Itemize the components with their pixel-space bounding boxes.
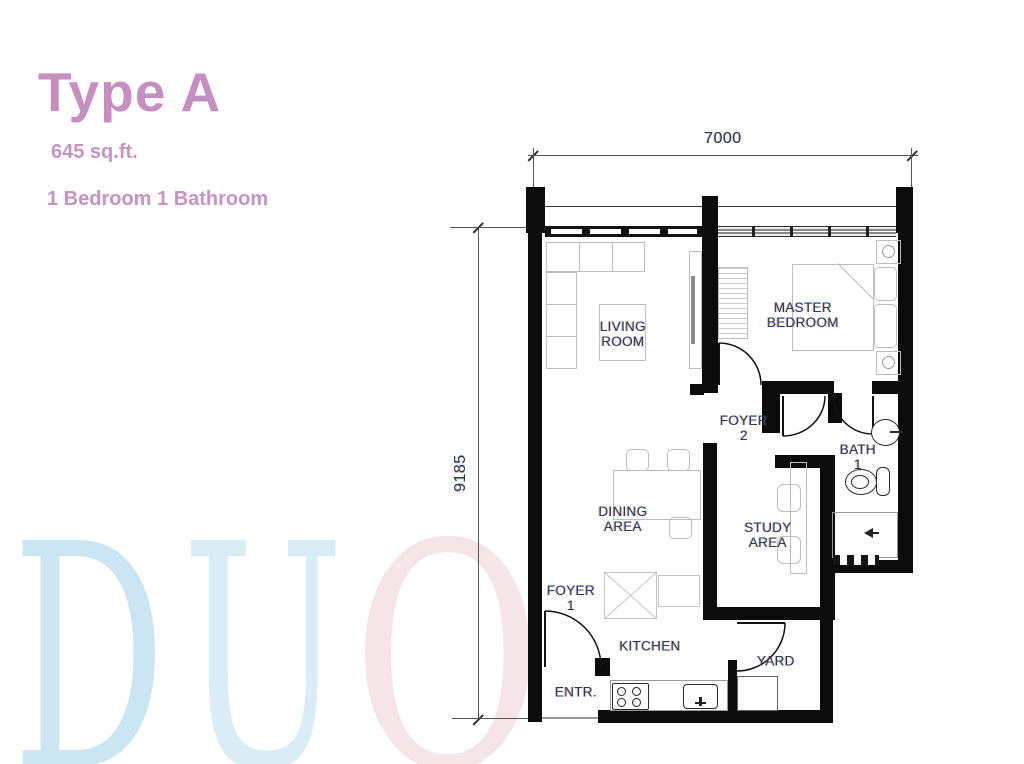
entrance-threshold xyxy=(542,717,598,719)
lamp-icon xyxy=(882,356,895,369)
shower-head-icon xyxy=(864,528,873,538)
dim-height: 9185 xyxy=(452,443,470,503)
cabinet xyxy=(658,575,700,607)
room-label-kitchen: KITCHEN xyxy=(619,638,680,653)
dim-line-top xyxy=(528,155,918,156)
door-arc-master-bedroom xyxy=(716,340,764,388)
wall-study-bottom xyxy=(703,607,835,620)
door-arc-foyer2 xyxy=(780,394,830,438)
area-label: 645 sq.ft. xyxy=(51,141,138,164)
kitchen-sink xyxy=(683,684,718,709)
chair xyxy=(669,517,692,539)
wall-stub xyxy=(690,384,704,395)
dim-ext-line xyxy=(452,718,540,719)
pillow xyxy=(874,304,897,348)
stove xyxy=(612,683,649,710)
dim-ext-line xyxy=(911,148,912,187)
page-title: Type A xyxy=(38,60,221,124)
sink-tap xyxy=(890,431,902,433)
chair xyxy=(667,449,690,471)
chair xyxy=(626,449,649,471)
window-living xyxy=(545,226,702,237)
room-label-master-bedroom: MASTER BEDROOM xyxy=(767,300,839,330)
lamp-icon xyxy=(882,245,895,258)
wall-bottom xyxy=(598,710,833,723)
config-label: 1 Bedroom 1 Bathroom xyxy=(47,188,268,211)
wall-study-left xyxy=(703,443,717,620)
shower-arm xyxy=(873,532,879,534)
dim-ext-line xyxy=(533,148,534,187)
room-label-yard: YARD xyxy=(757,653,795,668)
facade-edge-line xyxy=(542,206,898,207)
room-label-study: STUDY AREA xyxy=(744,520,791,550)
shower-threshold xyxy=(833,555,879,565)
room-label-foyer2: FOYER 2 xyxy=(720,413,768,443)
wall-yard-right xyxy=(820,573,833,722)
sofa-chaise xyxy=(546,271,577,369)
door-arc-entrance xyxy=(542,608,604,670)
room-label-entrance: ENTR. xyxy=(555,684,597,699)
shaft-x-icon xyxy=(604,572,657,619)
door-arc-bath xyxy=(830,394,876,436)
toilet-bowl-inner xyxy=(851,475,869,489)
dim-ext-line xyxy=(450,227,528,228)
sofa xyxy=(546,242,645,272)
toilet-tank xyxy=(876,467,890,496)
wall-bedroom-bath xyxy=(872,381,898,394)
wall-left xyxy=(528,188,542,722)
wardrobe xyxy=(718,267,748,339)
dim-width: 7000 xyxy=(690,130,756,148)
floorplan-page: D U O Type A 645 sq.ft. 1 Bedroom 1 Bath… xyxy=(0,0,1024,764)
washer xyxy=(737,676,778,711)
tv xyxy=(691,276,695,344)
room-label-dining: DINING AREA xyxy=(598,504,647,534)
chair xyxy=(777,484,801,512)
room-label-living: LIVING ROOM xyxy=(600,319,646,349)
room-label-bath1: BATH 1 xyxy=(840,442,876,472)
pillow xyxy=(874,267,897,301)
dim-line-left xyxy=(478,228,479,720)
window-master xyxy=(718,226,896,237)
room-label-foyer1: FOYER 1 xyxy=(547,583,595,613)
